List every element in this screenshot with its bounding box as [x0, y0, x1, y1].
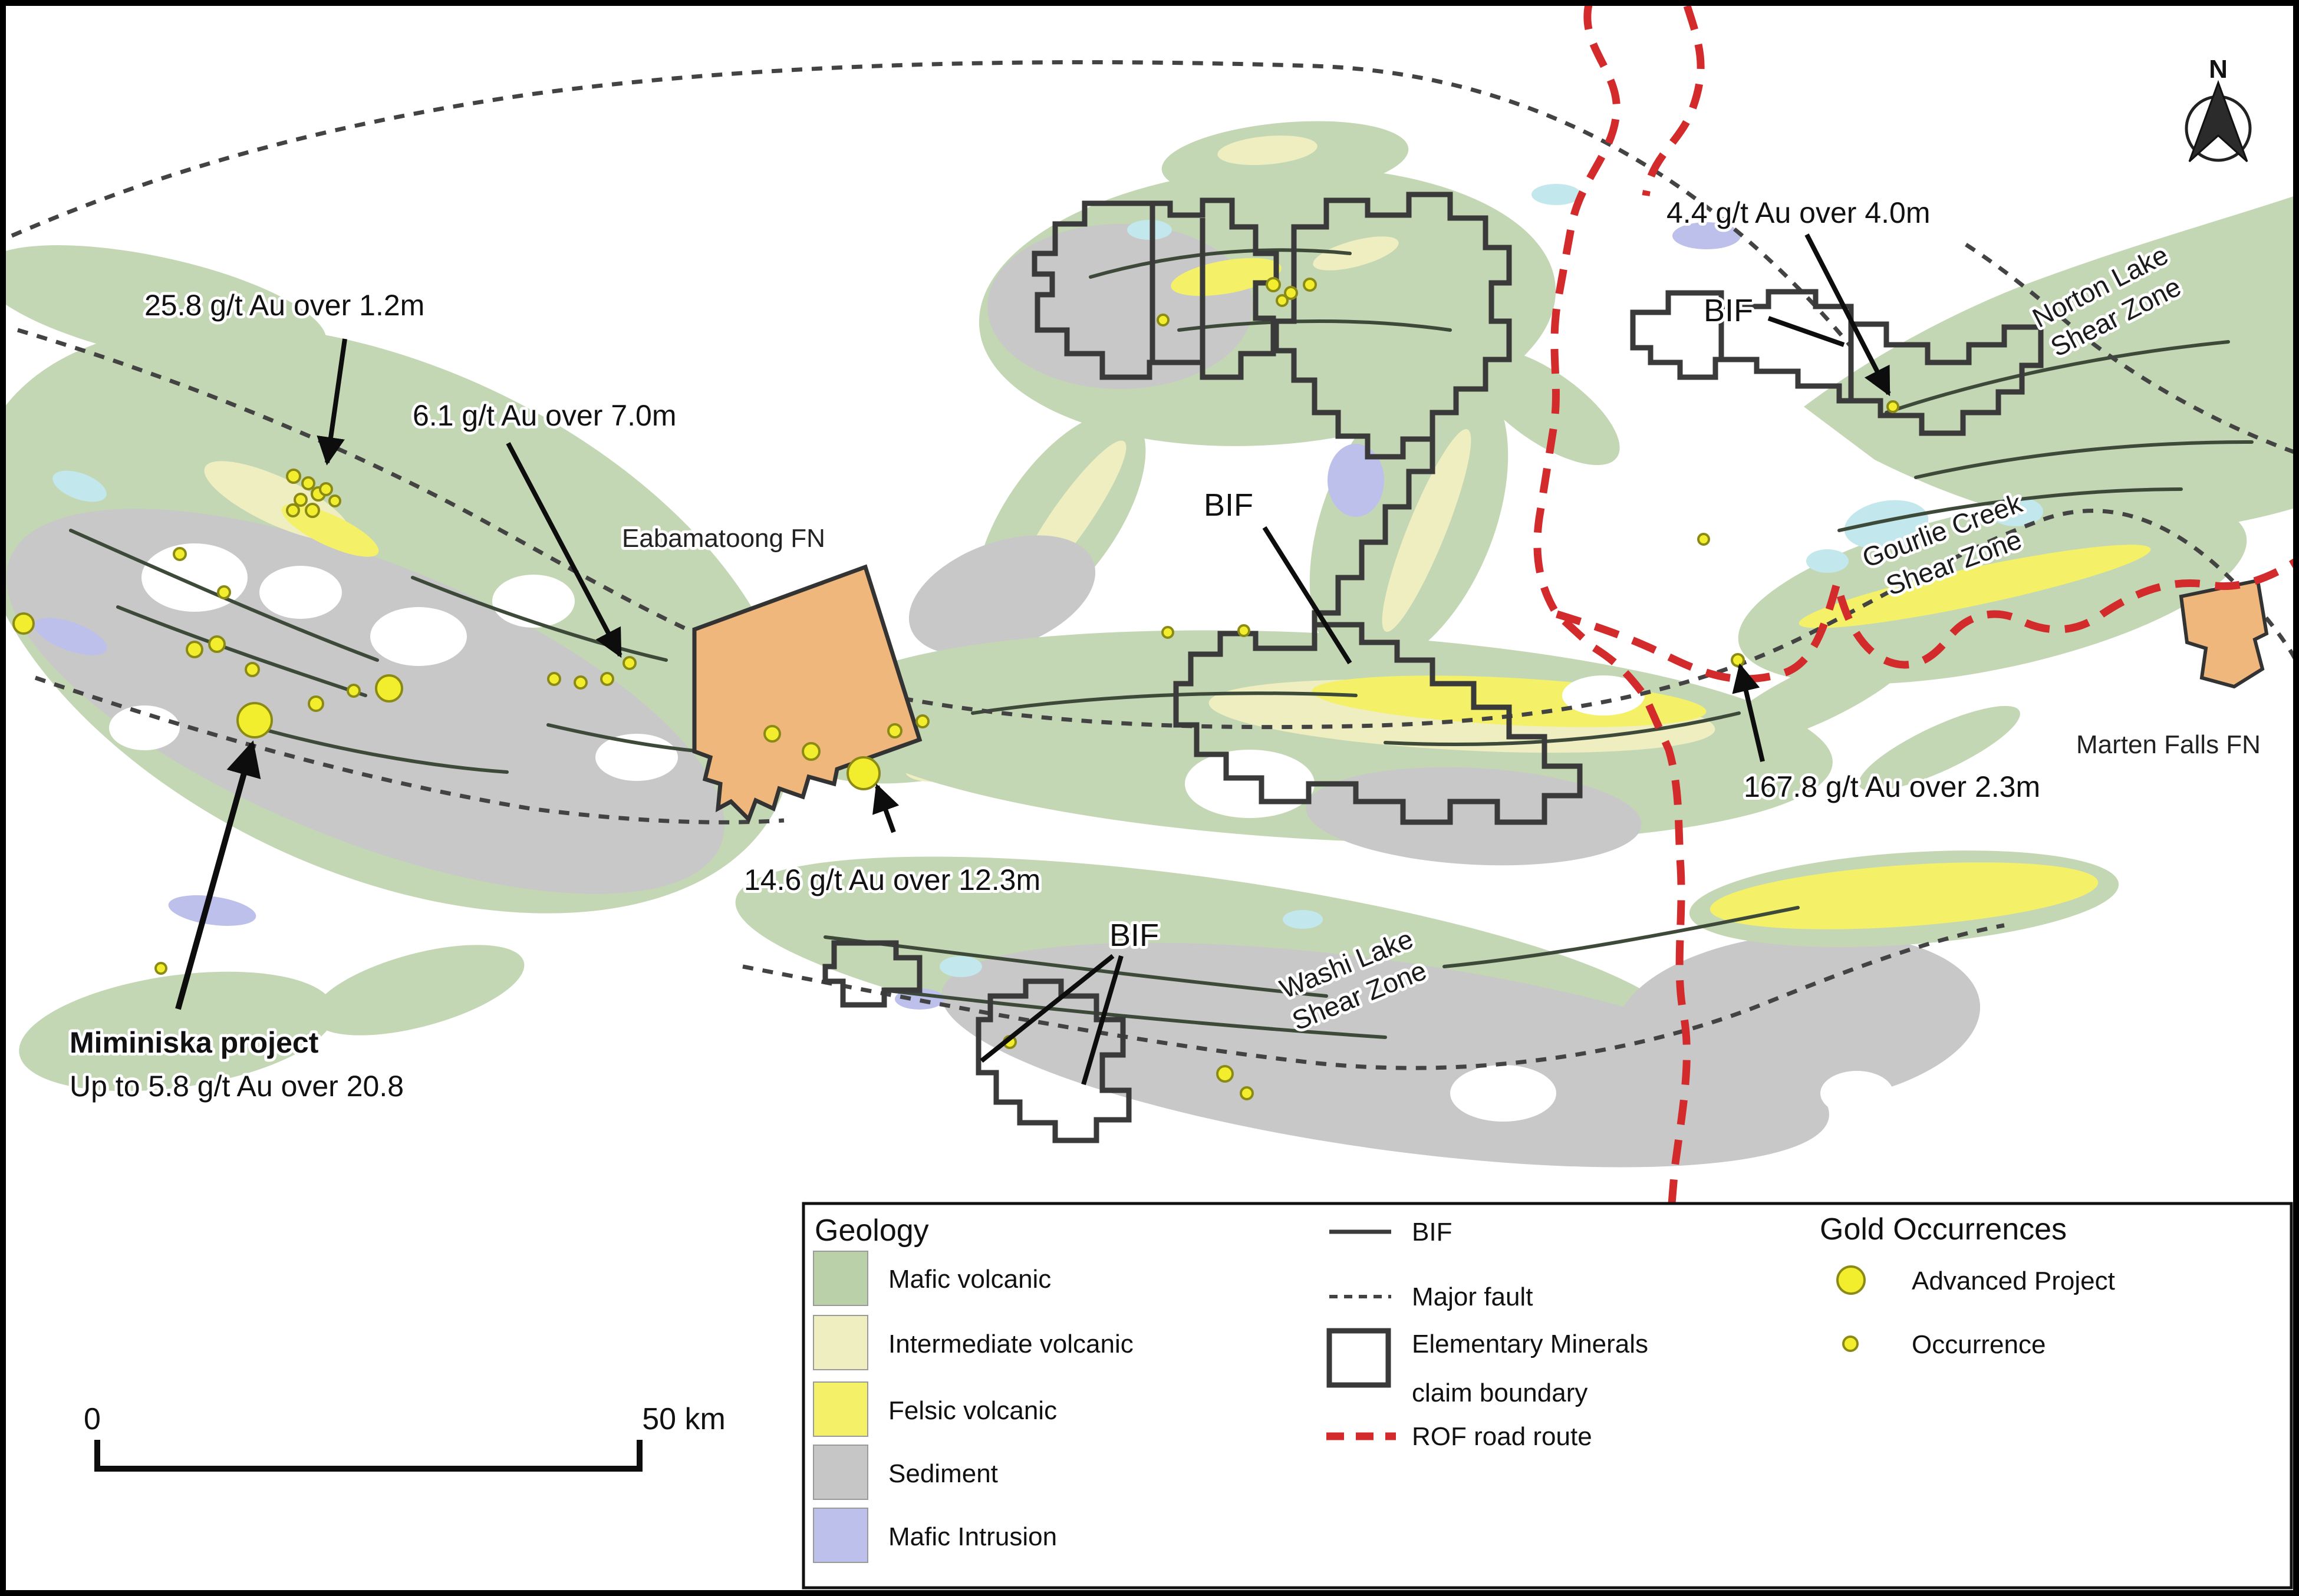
project-title: Miminiska project: [70, 1026, 319, 1059]
bif-label: BIF: [1109, 918, 1159, 953]
legend-swatch-felsic-volcanic: [813, 1382, 868, 1436]
advanced-project-dot: [376, 675, 402, 701]
legend-occurrence-label: Occurrence: [1912, 1330, 2046, 1359]
place-label-eabamatoong: Eabamatoong FN: [622, 524, 825, 553]
marten-falls-reserve-polygon: [2181, 581, 2267, 687]
scale-start: 0: [84, 1402, 101, 1436]
legend-major-fault-label: Major fault: [1412, 1282, 1533, 1311]
legend-claim-label-line1: Elementary Minerals: [1412, 1330, 1648, 1358]
legend-bif-label: BIF: [1412, 1218, 1452, 1247]
north-arrow-icon: [2189, 83, 2247, 161]
scale-bar-line: [97, 1440, 640, 1469]
bif-label: BIF: [1204, 487, 1253, 523]
bif-label: BIF: [1704, 293, 1753, 328]
advanced-project-dot: [848, 757, 880, 789]
north-arrow: N: [2186, 55, 2250, 161]
legend-item-label: Mafic volcanic: [888, 1265, 1051, 1294]
grade-annotation: 6.1 g/t Au over 7.0m: [413, 399, 677, 432]
legend-item-label: Intermediate volcanic: [888, 1330, 1134, 1358]
legend-gold-title: Gold Occurrences: [1820, 1212, 2067, 1247]
legend-geology-title: Geology: [815, 1214, 929, 1248]
legend-swatch-sediment: [813, 1445, 868, 1499]
legend-item-label: Mafic Intrusion: [888, 1522, 1057, 1551]
legend-swatch-mafic-volcanic: [813, 1251, 868, 1305]
advanced-project-dot: [14, 614, 34, 634]
geology-layer: [0, 112, 2299, 1211]
grade-annotation: 167.8 g/t Au over 2.3m: [1744, 770, 2040, 803]
advanced-project-dot: [238, 703, 272, 737]
legend-occurrence-dot: [1843, 1337, 1857, 1351]
grade-annotation: 4.4 g/t Au over 4.0m: [1666, 196, 1931, 229]
map-canvas: 25.8 g/t Au over 1.2m 6.1 g/t Au over 7.…: [0, 0, 2299, 1596]
grade-annotation: 14.6 g/t Au over 12.3m: [744, 863, 1040, 896]
geology-map-page: 25.8 g/t Au over 1.2m 6.1 g/t Au over 7.…: [0, 0, 2299, 1596]
legend-swatch-mafic-intrusion: [813, 1508, 868, 1562]
bif-top-leader: [1768, 318, 1844, 345]
legend-advanced-project-label: Advanced Project: [1912, 1267, 2115, 1295]
arrow-4-4: [1807, 235, 1889, 394]
scale-bar: 0 50 km: [84, 1402, 726, 1469]
legend-claim-boundary-symbol: [1329, 1331, 1388, 1385]
legend-swatch-intermediate-volcanic: [813, 1315, 868, 1370]
legend-advanced-project-dot: [1837, 1267, 1865, 1294]
legend-item-label: Sediment: [888, 1459, 998, 1488]
grade-annotation: 25.8 g/t Au over 1.2m: [144, 289, 424, 322]
legend-claim-label-line2: claim boundary: [1412, 1379, 1587, 1407]
legend-item-label: Felsic volcanic: [888, 1396, 1057, 1425]
project-grade: Up to 5.8 g/t Au over 20.8: [70, 1070, 404, 1103]
north-label: N: [2209, 55, 2228, 84]
scale-end: 50 km: [642, 1402, 726, 1436]
arrow-14-6: [877, 786, 894, 832]
legend-rof-road-label: ROF road route: [1412, 1422, 1592, 1451]
legend: Geology Mafic volcanic Intermediate volc…: [803, 1203, 2291, 1588]
place-label-marten-falls: Marten Falls FN: [2076, 730, 2261, 759]
